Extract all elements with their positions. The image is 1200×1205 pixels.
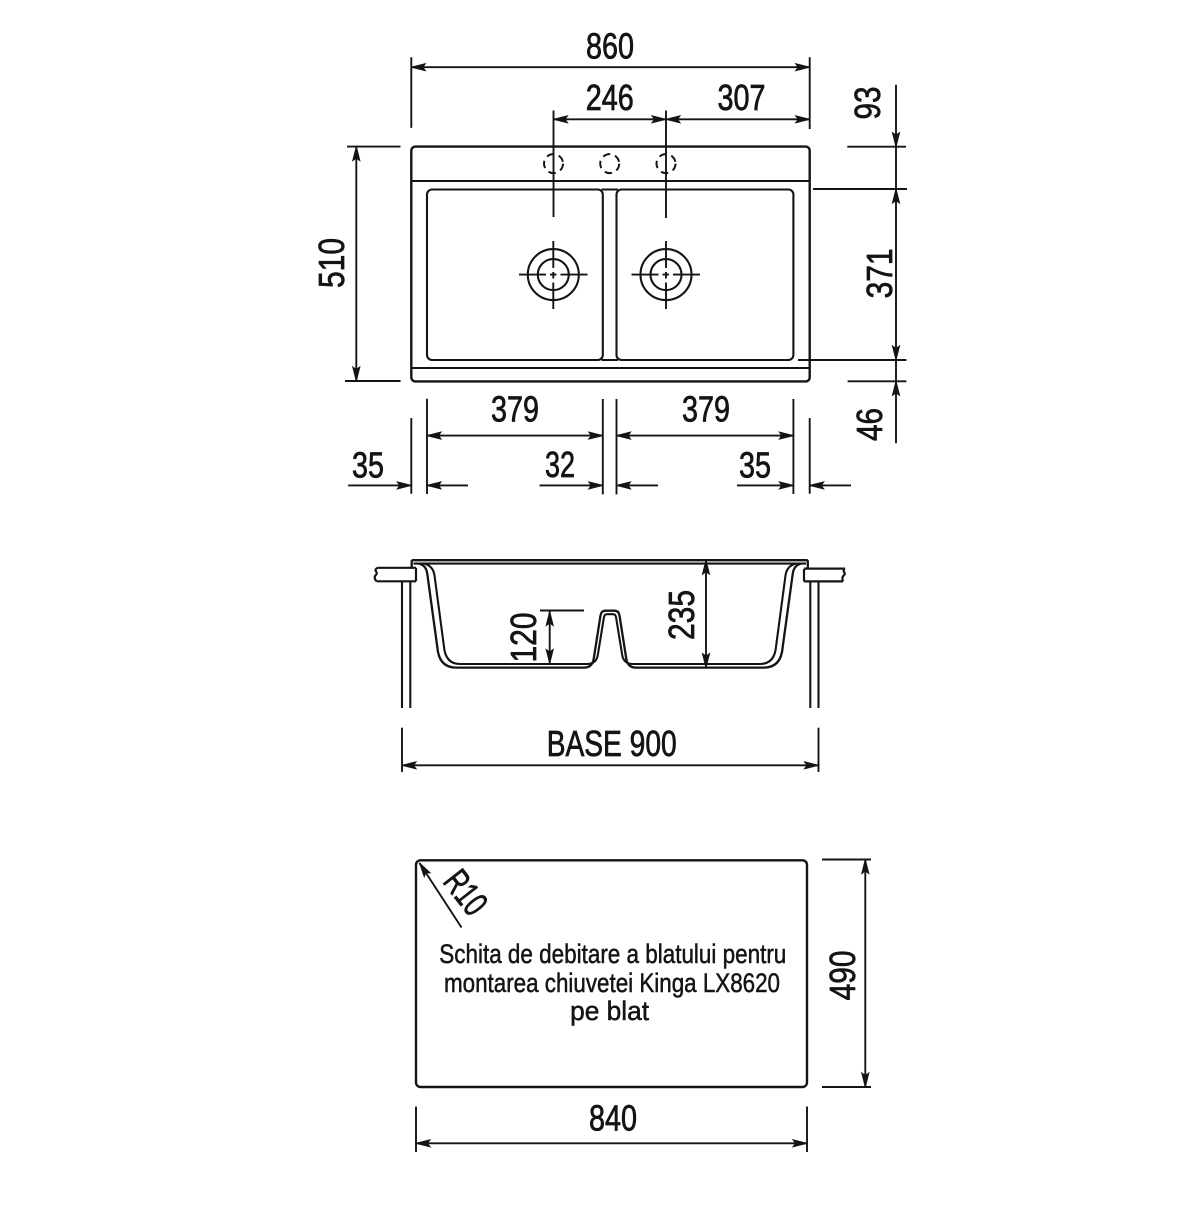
svg-text:pe blat: pe blat <box>570 996 650 1026</box>
svg-text:510: 510 <box>311 238 352 288</box>
svg-text:490: 490 <box>822 950 863 1000</box>
svg-text:246: 246 <box>586 77 634 118</box>
svg-text:46: 46 <box>849 408 890 441</box>
svg-text:35: 35 <box>352 445 384 486</box>
svg-text:371: 371 <box>859 248 900 298</box>
svg-text:35: 35 <box>739 445 771 486</box>
svg-text:Schita de debitare a blatului: Schita de debitare a blatului pentru <box>439 939 786 969</box>
svg-text:120: 120 <box>503 613 544 663</box>
svg-text:R10: R10 <box>436 862 497 923</box>
svg-text:235: 235 <box>661 590 702 640</box>
svg-text:93: 93 <box>847 87 888 120</box>
svg-text:montarea chiuvetei Kinga LX862: montarea chiuvetei Kinga LX8620 <box>444 968 780 998</box>
svg-text:32: 32 <box>545 444 575 485</box>
svg-text:860: 860 <box>586 26 634 67</box>
svg-text:307: 307 <box>718 77 766 118</box>
svg-text:840: 840 <box>589 1097 637 1138</box>
svg-text:BASE 900: BASE 900 <box>547 723 677 764</box>
svg-text:379: 379 <box>682 389 730 430</box>
svg-text:379: 379 <box>491 389 539 430</box>
